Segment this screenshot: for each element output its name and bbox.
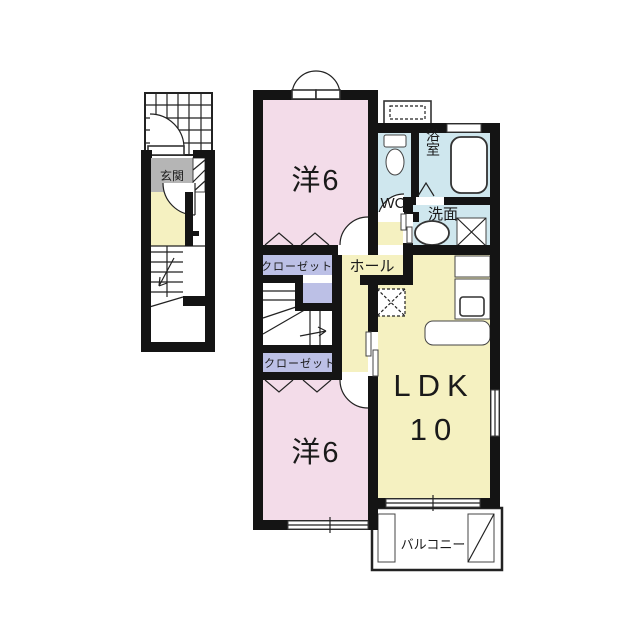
wall-segment: [193, 150, 215, 158]
porch-door-leaf: [148, 146, 184, 155]
wall-segment: [141, 342, 215, 352]
balcony-planter: [378, 514, 395, 562]
bath-window: [447, 124, 481, 132]
fridge-space: [377, 289, 405, 316]
label-ldk-size: 10: [410, 412, 458, 447]
bath-fixtures: [451, 137, 487, 193]
label-genkan: 玄関: [160, 168, 184, 183]
water-heater-box: [384, 101, 431, 124]
wall-segment: [368, 90, 378, 255]
doorway-wc: [378, 212, 404, 222]
wall-segment: [332, 245, 342, 345]
ldk-side-window: [491, 390, 499, 436]
hall-corridor: [342, 275, 368, 372]
wall-segment: [141, 150, 152, 158]
water-heater: [384, 101, 431, 124]
wc-fixtures: [384, 135, 406, 175]
wall-segment: [183, 296, 207, 306]
doorway-bedroom-lower: [342, 372, 368, 380]
wall-segment: [141, 150, 151, 352]
kitchen-sink-icon: [460, 297, 484, 316]
wall-segment: [253, 345, 342, 353]
label-balcony: バルコニー: [401, 537, 466, 552]
wall-segment: [360, 275, 413, 285]
closet-upper-ext: [303, 283, 332, 303]
label-closet-lower: クローゼット: [264, 357, 336, 370]
bathtub-icon: [451, 137, 487, 193]
wall-segment: [411, 133, 419, 205]
label-bath: 浴室: [425, 128, 441, 156]
floorplan-drawing: 玄関 洋6 洋6 クローゼット クローゼット ホール WC 浴室 洗面 LDK …: [0, 0, 640, 640]
wall-segment: [295, 303, 342, 311]
toilet-bowl-icon: [386, 149, 404, 175]
wall-segment: [368, 376, 378, 530]
kitchen-counter-peninsula: [425, 321, 490, 345]
label-closet-upper: クローゼット: [261, 260, 333, 273]
label-hall: ホール: [349, 258, 394, 275]
wall-segment: [253, 90, 263, 530]
wall-segment: [205, 150, 215, 352]
label-ldk-name: LDK: [393, 368, 474, 403]
hall-front-wc: [378, 222, 403, 245]
doorway-bedroom-upper: [338, 245, 368, 255]
sink-icon: [415, 221, 449, 245]
wall-segment: [185, 192, 193, 246]
toilet-tank-icon: [384, 135, 406, 147]
label-bedroom-upper: 洋6: [291, 164, 340, 197]
floorplan-canvas: 玄関 洋6 洋6 クローゼット クローゼット ホール WC 浴室 洗面 LDK …: [0, 0, 640, 640]
wall-segment: [490, 123, 500, 508]
doorway-bath: [416, 197, 444, 205]
label-bedroom-lower: 洋6: [291, 436, 340, 469]
wall-segment: [403, 245, 500, 255]
wall-segment: [253, 275, 303, 283]
wall-segment: [368, 275, 378, 332]
label-washroom: 洗面: [428, 206, 458, 223]
label-wc: WC: [381, 195, 406, 212]
